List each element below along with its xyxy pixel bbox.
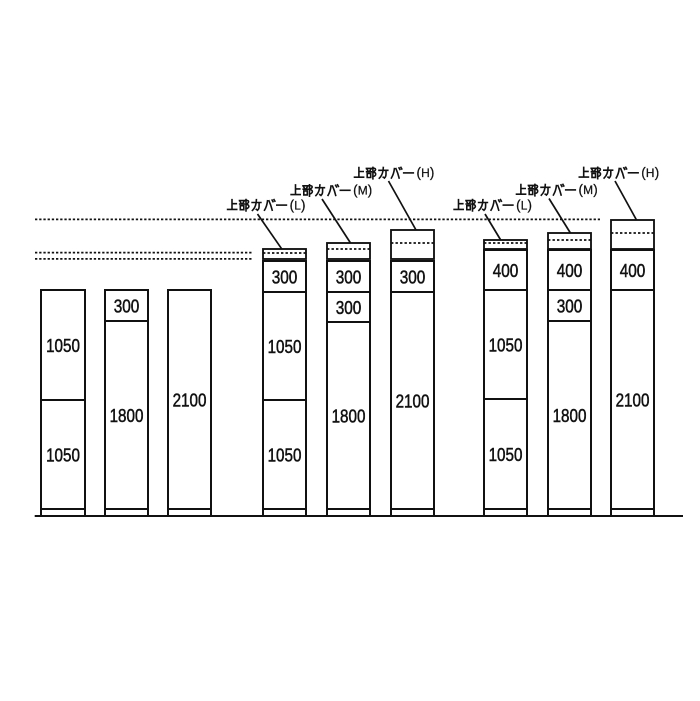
- svg-text:1050: 1050: [268, 337, 302, 357]
- svg-text:400: 400: [557, 261, 583, 281]
- svg-text:2100: 2100: [173, 391, 207, 411]
- svg-text:H: H: [646, 166, 655, 180]
- svg-text:M: M: [583, 183, 593, 197]
- svg-text:1800: 1800: [332, 407, 366, 427]
- svg-text:1050: 1050: [489, 336, 523, 356]
- svg-text:1050: 1050: [268, 446, 302, 466]
- svg-text:): ): [368, 183, 372, 198]
- svg-text:400: 400: [493, 261, 519, 281]
- svg-text:1050: 1050: [489, 445, 523, 465]
- svg-text:): ): [593, 182, 597, 197]
- svg-text:300: 300: [336, 268, 362, 288]
- svg-text:300: 300: [272, 268, 298, 288]
- svg-text:2100: 2100: [616, 391, 650, 411]
- svg-text:M: M: [358, 184, 368, 198]
- svg-text:2100: 2100: [396, 392, 430, 412]
- svg-text:): ): [655, 165, 659, 180]
- svg-text:1050: 1050: [46, 336, 80, 356]
- svg-text:H: H: [421, 166, 430, 180]
- svg-text:): ): [528, 197, 532, 212]
- svg-text:300: 300: [114, 297, 140, 317]
- svg-text:300: 300: [336, 298, 362, 318]
- svg-text:300: 300: [400, 268, 426, 288]
- svg-text:1800: 1800: [553, 406, 587, 426]
- svg-text:300: 300: [557, 297, 583, 317]
- svg-text:): ): [430, 165, 434, 180]
- svg-text:400: 400: [620, 261, 646, 281]
- svg-text:): ): [301, 197, 305, 212]
- svg-text:1050: 1050: [46, 446, 80, 466]
- svg-text:1800: 1800: [110, 406, 144, 426]
